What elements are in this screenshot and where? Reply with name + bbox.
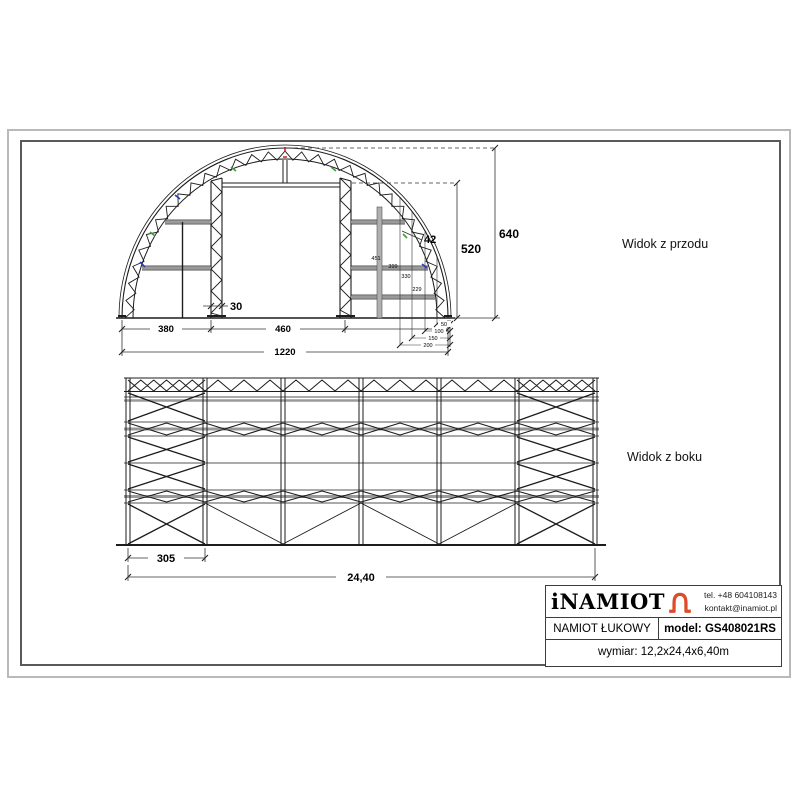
overall-dimensions: wymiar: 12,2x24,4x6,40m bbox=[546, 640, 781, 664]
side-view-label: Widok z boku bbox=[627, 450, 702, 464]
dim-side-total-length: 24,40 bbox=[347, 572, 375, 584]
phone-number: tel. +48 604108143 bbox=[704, 589, 777, 601]
dim-offset-2: 100 bbox=[434, 329, 443, 335]
title-block: iNAMIOT tel. +48 604108143 kontakt@inami… bbox=[545, 585, 782, 667]
front-view-dim-labels: 380 460 1220 30 42 520 640 451 399 330 2… bbox=[150, 227, 519, 358]
tent-arch-icon bbox=[667, 590, 693, 614]
side-view-dim-labels: 305 24,40 bbox=[148, 551, 386, 584]
tent-arch-icon-path bbox=[669, 594, 691, 611]
email-address: kontakt@inamiot.pl bbox=[704, 602, 777, 614]
dim-arch-thickness: 42 bbox=[424, 234, 436, 246]
generated-geometry bbox=[211, 181, 222, 316]
dim-offset-4: 200 bbox=[423, 343, 432, 349]
generated-geometry bbox=[126, 378, 597, 545]
dim-apex-height: 640 bbox=[499, 227, 519, 241]
contact-info: tel. +48 604108143 kontakt@inamiot.pl bbox=[704, 587, 781, 616]
generated-geometry bbox=[340, 178, 351, 316]
dim-offset-3: 150 bbox=[428, 336, 437, 342]
dim-left-bay: 380 bbox=[158, 324, 174, 335]
front-view-label: Widok z przodu bbox=[622, 237, 708, 251]
drawing-sheet: 380 460 1220 30 42 520 640 451 399 330 2… bbox=[0, 0, 800, 800]
title-block-model-row: NAMIOT ŁUKOWY model: GS408021RS bbox=[546, 618, 781, 640]
side-view-drawing bbox=[116, 378, 606, 545]
dim-total-width: 1220 bbox=[274, 347, 295, 358]
dim-door-height: 520 bbox=[461, 242, 481, 256]
technical-drawing: 380 460 1220 30 42 520 640 451 399 330 2… bbox=[0, 0, 800, 800]
dim-offset-1: 50 bbox=[441, 322, 447, 328]
dim-rail-3: 330 bbox=[401, 274, 410, 280]
dim-door-width: 460 bbox=[275, 324, 291, 335]
dim-side-first-bay: 305 bbox=[157, 553, 175, 565]
dim-rail-4: 229 bbox=[412, 287, 421, 293]
dim-rail-1: 451 bbox=[371, 256, 380, 262]
model-number: model: GS408021RS bbox=[658, 618, 781, 639]
title-block-brand-row: iNAMIOT tel. +48 604108143 kontakt@inami… bbox=[546, 586, 781, 618]
dim-post-width: 30 bbox=[230, 301, 242, 313]
generated-geometry bbox=[128, 393, 595, 544]
front-view-drawing bbox=[116, 145, 455, 318]
dim-rail-2: 399 bbox=[388, 264, 397, 270]
brand-logo-text: iNAMIOT bbox=[546, 591, 665, 612]
generated-geometry bbox=[125, 151, 445, 318]
generated-geometry bbox=[128, 380, 595, 391]
product-name: NAMIOT ŁUKOWY bbox=[546, 618, 658, 639]
